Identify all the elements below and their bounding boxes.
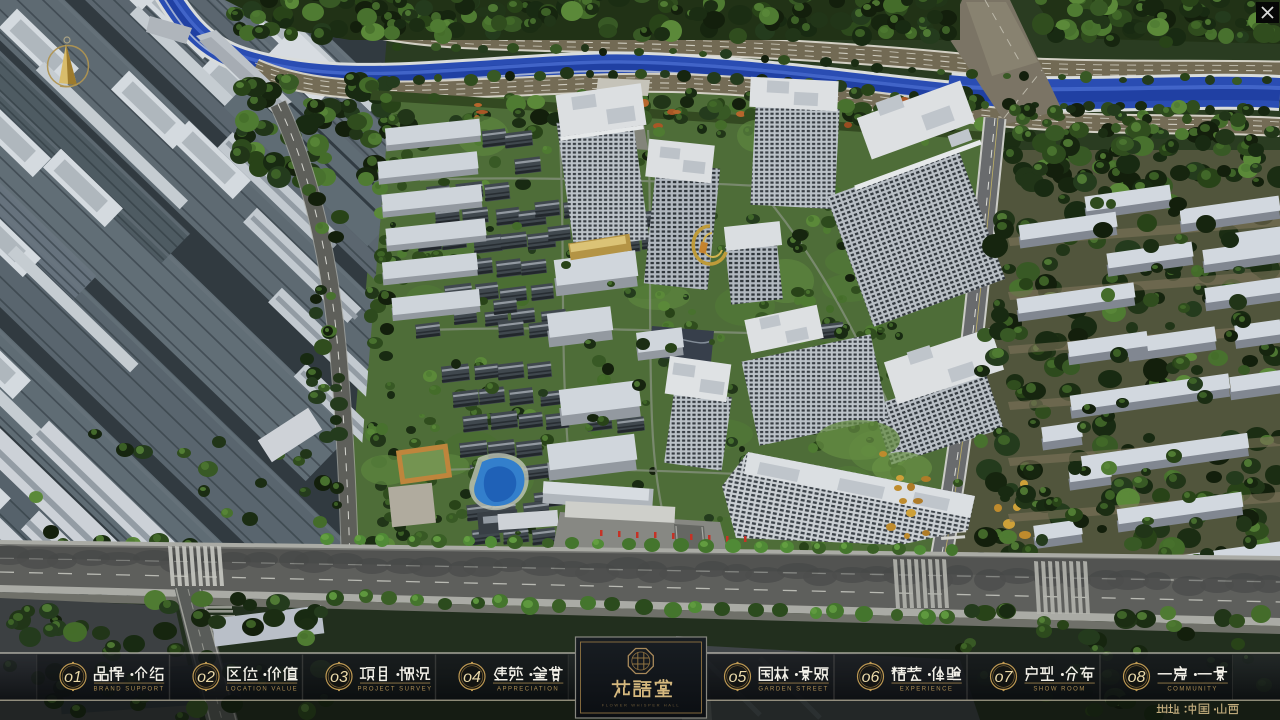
svg-text:o2: o2 xyxy=(197,669,215,686)
svg-text:o7: o7 xyxy=(995,669,1014,686)
svg-text:COMMUNITY: COMMUNITY xyxy=(1167,687,1218,693)
svg-text:o1: o1 xyxy=(64,669,82,686)
svg-text:LOCATION VALUE: LOCATION VALUE xyxy=(226,687,298,693)
svg-text:o4: o4 xyxy=(463,669,481,686)
svg-text:BRAND SUPPORT: BRAND SUPPORT xyxy=(94,687,165,693)
svg-text:o8: o8 xyxy=(1128,669,1146,686)
svg-text:PROJECT SURVEY: PROJECT SURVEY xyxy=(358,687,433,693)
svg-text:o3: o3 xyxy=(330,669,348,686)
svg-text:EXPERIENCE: EXPERIENCE xyxy=(900,687,954,693)
svg-text:o5: o5 xyxy=(729,669,747,686)
svg-text:APPRECIATION: APPRECIATION xyxy=(497,687,559,693)
svg-text:GARDEN STREET: GARDEN STREET xyxy=(758,687,829,693)
svg-text:SHOW ROOM: SHOW ROOM xyxy=(1033,687,1086,693)
svg-text:FLOWER WHISPER HALL: FLOWER WHISPER HALL xyxy=(602,703,680,708)
svg-text:o6: o6 xyxy=(862,669,880,686)
